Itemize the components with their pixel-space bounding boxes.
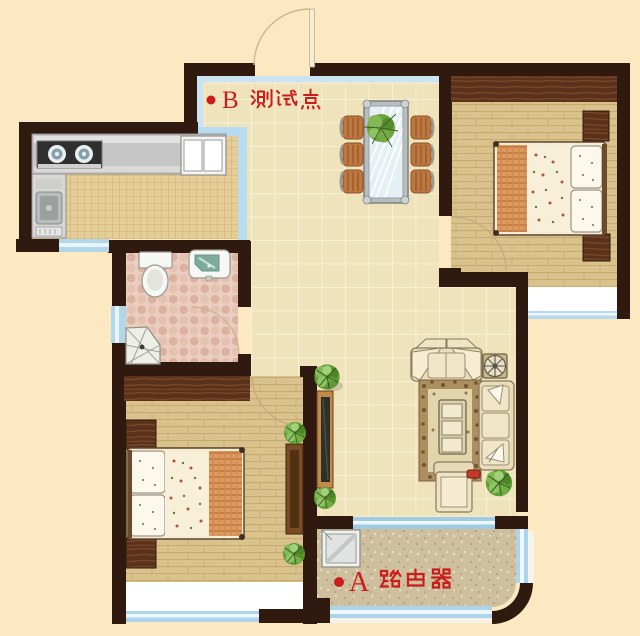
svg-text:B: B bbox=[222, 87, 239, 114]
svg-text:A: A bbox=[349, 567, 370, 598]
